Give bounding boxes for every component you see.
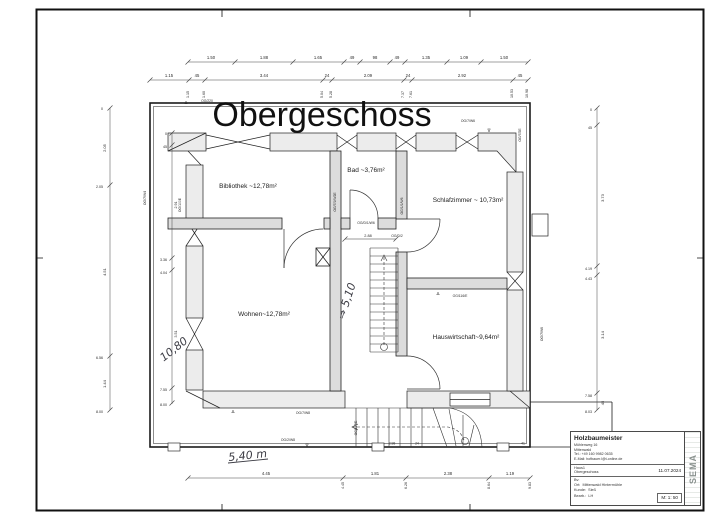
dim-cum-label: 45 — [163, 145, 167, 149]
dim-label: 1.81 — [371, 471, 380, 476]
schlafzimmer-hauswirtschaft-wall — [407, 278, 507, 289]
door-hauswirtschaft — [407, 356, 440, 389]
dim-cum-label: 7.61 — [409, 91, 413, 98]
dim-label: 49 — [395, 55, 400, 60]
dim-cum-label: 5.28 — [329, 91, 333, 98]
wall-id: OG/1/1/W6 — [400, 197, 404, 214]
scale-box: M: 1: 50 — [657, 493, 682, 503]
wall-id: OG/220 — [201, 99, 213, 103]
dim-label: 1.19 — [506, 471, 515, 476]
hall-west-wall — [330, 151, 341, 391]
winder-treads — [433, 408, 474, 447]
ort-value: Mittenwald Hintermühle — [582, 483, 622, 487]
dim-label: 2.05 — [102, 143, 107, 152]
dim-label: 24 — [325, 73, 330, 78]
bibliothek-wohnen-wall — [168, 218, 282, 229]
dim-cum-label: 3.36 — [160, 258, 167, 262]
project-info: Haus1 Obergeschoss — [574, 466, 598, 475]
wall-id: OG/117/E — [354, 420, 358, 436]
dim-label: 2.98 — [389, 442, 396, 446]
dim-label: 45 — [600, 400, 605, 405]
dim-cum-label: 4.19 — [585, 267, 592, 271]
dim-label: 3.14 — [600, 330, 605, 339]
door-bad — [350, 190, 378, 218]
dim-cum-label: 1.15 — [186, 91, 190, 98]
dim-cum-label: 4.43 — [585, 277, 592, 281]
dim-cum-label: 8.03 — [585, 410, 592, 414]
corner-panel-ne — [478, 133, 516, 172]
dim-label: 1.88 — [260, 55, 269, 60]
title-block-main: Holzbaumeister Mühlenweg 16 Mittenwald T… — [571, 432, 684, 505]
marker-triangle: Δ — [231, 409, 234, 414]
dim-label: 2.38 — [444, 471, 453, 476]
dim-label: 45 — [518, 73, 523, 78]
dim-cum-label: 10.98 — [525, 89, 529, 98]
wall-id: OG/116/E — [453, 294, 469, 298]
marker-triangle: Δ — [184, 100, 187, 105]
handwritten-10-80: 10,80 — [157, 334, 190, 364]
dim-label: 4.51 — [102, 267, 107, 276]
dim-label: 2.09 — [364, 73, 373, 78]
dim-label: 98 — [373, 55, 378, 60]
dim-label: 24 — [415, 442, 419, 446]
marker-triangle: Δ — [436, 291, 439, 296]
wall-id: OG/D/2 — [391, 234, 403, 238]
wall-panels — [168, 133, 548, 408]
dim-cum-label: 7.58 — [585, 394, 592, 398]
window — [168, 443, 180, 451]
room-label-schlafzimmer: Schlafzimmer ~ 10,73m² — [433, 197, 504, 204]
dim-cum-label: 5.04 — [320, 91, 324, 98]
dim-cum-label: 7.55 — [160, 388, 167, 392]
bearb-value: LH — [588, 494, 593, 498]
dim-label: 45 — [195, 73, 200, 78]
dim-cum-label: 8.64 — [487, 482, 491, 489]
dim-cum-label: 9.83 — [528, 482, 532, 489]
company-address: Mühlenweg 16 Mittenwald Tel.: +49 160 99… — [571, 443, 684, 465]
dim-cum-label: 0 — [165, 132, 167, 136]
dim-label: 1.15 — [165, 73, 174, 78]
meta-fields: Bv: Ort: Mittenwald Hintermühle Kunde: S… — [571, 477, 684, 505]
wall-id: OG/D/1/W6 — [357, 221, 375, 225]
dim-label: 1.09 — [460, 55, 469, 60]
dim-label: 1.50 — [500, 55, 509, 60]
dim-cum-label: 6.26 — [404, 482, 408, 489]
wall-id: OG/100E — [178, 197, 182, 212]
room-label-bibliothek: Bibliothek ~12,78m² — [219, 183, 277, 190]
sema-logo: SEMA — [684, 432, 700, 505]
stair-walkline — [352, 427, 464, 440]
dim-cum-label: 4.04 — [160, 271, 167, 275]
dim-label: 41 — [521, 442, 525, 446]
dim-label: 3.73 — [600, 193, 605, 202]
dim-cum-label: 1.60 — [202, 91, 206, 98]
dim-label: 3.51 — [174, 331, 178, 338]
doors — [284, 190, 440, 389]
company-name: Holzbaumeister — [571, 432, 684, 443]
wall-id: OG/7/W6 — [540, 327, 544, 341]
wall-id: OG/7/W8 — [296, 411, 310, 415]
wall-id: OG/2/W8 — [281, 438, 295, 442]
labels-layer: ObergeschossBibliothek ~12,78m²Bad ~3,76… — [96, 55, 605, 489]
dim-label: 2.92 — [458, 73, 467, 78]
handwritten-5-40: 5,40 m — [228, 447, 268, 464]
chimney — [532, 214, 548, 236]
dim-label: 2.88 — [364, 234, 371, 238]
dim-cum-label: 8.00 — [160, 403, 167, 407]
drawing-title: Obergeschoss — [212, 96, 431, 134]
dim-label: 4.45 — [262, 471, 271, 476]
dim-cum-label: 6.56 — [96, 356, 103, 360]
dim-label: 24 — [406, 73, 411, 78]
dim-cum-label: 0 — [590, 108, 592, 112]
dim-label: 1.35 — [422, 55, 431, 60]
dim-cum-label: 4.45 — [341, 482, 345, 489]
room-label-bad: Bad ~3,76m² — [347, 167, 385, 174]
wall-id: OG/7/1/W2E — [333, 192, 337, 212]
marker-triangle: ∇ — [486, 128, 491, 133]
window — [372, 443, 384, 451]
email: E-Mail: hofbauer.l@t-online.de — [574, 457, 681, 462]
dim-cum-label: 7.37 — [401, 91, 405, 98]
dim-label: 1.50 — [207, 55, 216, 60]
dim-label: 3.44 — [260, 73, 269, 78]
title-block: Holzbaumeister Mühlenweg 16 Mittenwald T… — [570, 431, 701, 506]
room-label-wohnen: Wohnen~12,78m² — [238, 311, 291, 318]
dim-cum-label: 10.53 — [510, 89, 514, 98]
dim-cum-label: 0 — [101, 107, 103, 111]
floor-name: Obergeschoss — [574, 470, 598, 475]
drawing-date: 11.07.2024 — [658, 468, 681, 473]
drawing-sheet: ObergeschossBibliothek ~12,78m²Bad ~3,76… — [0, 0, 721, 520]
dim-cum-label: 45 — [588, 126, 592, 130]
dim-cum-label: 2.05 — [96, 185, 103, 189]
window — [497, 443, 509, 451]
dim-label: 1.65 — [314, 55, 323, 60]
dim-cum-label: 8.00 — [96, 410, 103, 414]
wall-id: OG/7/2E — [518, 128, 522, 142]
room-label-hauswirtschaft: Hauswirtschaft~9,64m² — [433, 334, 500, 341]
dim-label: 1.44 — [102, 379, 107, 388]
bottom-panel-west — [203, 391, 345, 408]
door-schlafzimmer — [407, 219, 440, 252]
kunde-value: Sieß — [588, 488, 596, 492]
wall-id: OG/7/W4 — [143, 191, 147, 205]
project-row: Haus1 Obergeschoss 11.07.2024 — [571, 465, 684, 477]
stair-external — [168, 408, 509, 451]
dim-label: 49 — [350, 55, 355, 60]
wall-id: OG/7/W6 — [461, 119, 475, 123]
